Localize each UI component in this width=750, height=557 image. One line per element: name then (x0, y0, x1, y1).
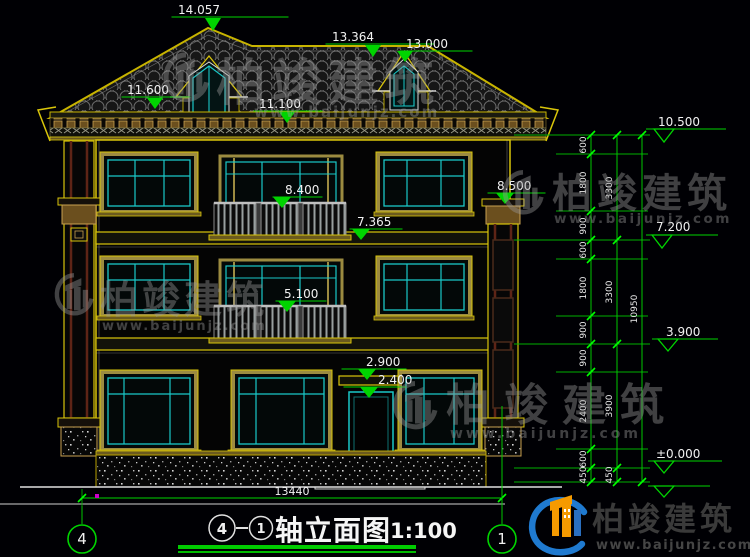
level-text: 11.600 (127, 83, 169, 97)
level-text: 14.057 (178, 3, 220, 17)
window-3f-right (376, 152, 472, 214)
window-2f-right (376, 256, 472, 318)
level-text: 7.365 (357, 215, 391, 229)
balcony-3f (209, 203, 351, 240)
watermark-site: www.baijunjz.com (554, 211, 732, 227)
drawing-title: 轴立面图 (275, 514, 391, 547)
level-text: 13.000 (406, 37, 448, 51)
window-1f-mid (231, 370, 332, 452)
level-text: 3.900 (666, 325, 700, 339)
logo-site-text: www.baijunjz.com (596, 538, 750, 553)
dim-label: 600 (579, 450, 589, 467)
dim-label: 900 (579, 321, 589, 338)
window-1f-left (100, 370, 198, 452)
level-marker-zero: ±0.000 (648, 447, 722, 497)
level-text: ±0.000 (656, 447, 700, 461)
dim-label: 450 (579, 466, 589, 483)
watermark-site: www.baijunjz.com (254, 103, 439, 121)
title-block: 4 1 轴立面图 1:100 (178, 514, 457, 553)
watermark-brand: 柏竣建筑 (100, 278, 268, 322)
drawing-scale: 1:100 (390, 519, 457, 543)
level-text: 5.100 (284, 287, 318, 301)
dim-label: 1800 (579, 276, 589, 299)
bottom-dimension: 13440 (78, 485, 506, 506)
title-underline-thin (178, 551, 416, 553)
title-underline (178, 545, 416, 549)
plinth (96, 451, 486, 487)
sill (97, 212, 201, 216)
window-3f-left (100, 152, 198, 214)
elevation-drawing: 14.057 13.364 13.000 11.600 11.100 8.400… (0, 0, 750, 557)
title-axis-to: 1 (256, 522, 265, 537)
watermark-site: www.baijunjz.com (450, 426, 641, 442)
grip-point (95, 494, 99, 498)
brand-logo: 柏竣建筑 www.baijunjz.com (532, 495, 750, 553)
dim-label: 900 (579, 349, 589, 366)
dim-label: 600 (579, 241, 589, 258)
level-text: 13.364 (332, 30, 374, 44)
total-height-label: 10950 (630, 294, 640, 323)
level-marker-f2-right: 3.900 (652, 325, 718, 351)
sill (374, 316, 474, 320)
watermark-site: www.baijunjz.com (102, 319, 267, 334)
watermark-brand: 柏竣建筑 (446, 380, 678, 431)
level-marker-ridge: 14.057 (172, 3, 288, 31)
dim-label: 600 (579, 136, 589, 153)
watermark-right: 柏竣建筑 www.baijunjz.com (505, 171, 732, 227)
title-axis-from: 4 (217, 520, 227, 538)
axis-number: 4 (77, 530, 87, 548)
dim-label: 450 (605, 466, 615, 483)
level-text: 8.400 (285, 183, 319, 197)
ornament-band (50, 128, 546, 137)
axis-number: 1 (497, 530, 507, 548)
logo-brand-text: 柏竣建筑 (592, 500, 736, 538)
level-text: 2.900 (366, 355, 400, 369)
level-text: 10.500 (658, 115, 700, 129)
overall-width-label: 13440 (275, 485, 310, 498)
cad-canvas: 14.057 13.364 13.000 11.600 11.100 8.400… (0, 0, 750, 557)
level-marker-eave-right: 10.500 (646, 115, 726, 142)
dim-label: 3300 (605, 280, 615, 303)
